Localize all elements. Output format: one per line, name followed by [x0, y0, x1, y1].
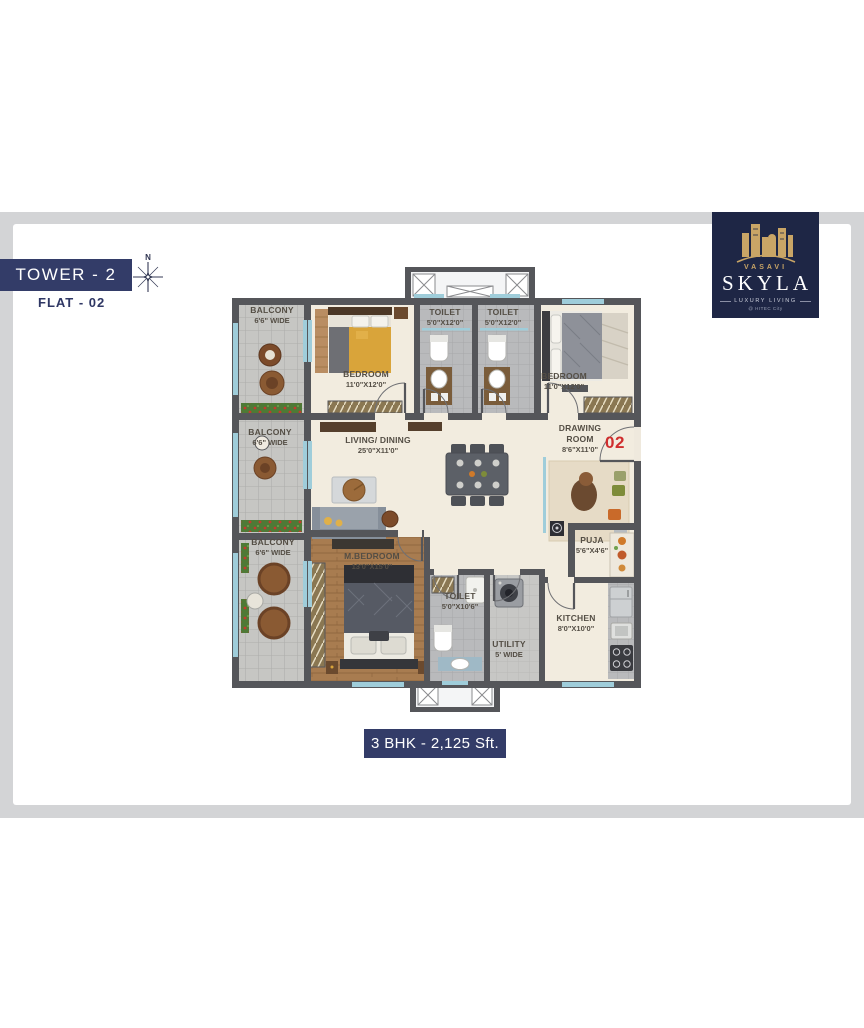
room-name: TOILET [485, 307, 522, 318]
room-dim: 6'6" WIDE [250, 316, 293, 326]
room-name: DRAWING ROOM [551, 423, 609, 445]
room-label-balcony-mid: BALCONY 6'6" WIDE [248, 427, 291, 448]
floor-plan-svg [232, 265, 641, 715]
room-dim: 8'0"X10'0" [556, 624, 595, 634]
room-name: M.BEDROOM [344, 551, 400, 562]
room-name: BEDROOM [343, 369, 389, 380]
puja-furniture [610, 533, 634, 577]
floor-plan: BALCONY 6'6" WIDE BEDROOM 11'0"X12'0" TO… [232, 265, 641, 715]
tagline-rule-right [800, 301, 811, 302]
room-label-balcony-bottom: BALCONY 6'6" WIDE [251, 537, 294, 558]
skyline-icon [735, 221, 797, 263]
room-name: KITCHEN [556, 613, 595, 624]
room-name: PUJA [576, 535, 608, 546]
room-dim: 25'0"X11'0" [345, 446, 411, 456]
unit-number: 02 [605, 433, 625, 453]
compass-icon: N [132, 253, 164, 297]
room-dim: 5'0"X12'0" [485, 318, 522, 328]
room-label-balcony-top: BALCONY 6'6" WIDE [250, 305, 293, 326]
room-dim: 13'0"X15'0" [344, 562, 400, 572]
logo-tagline: LUXURY LIVING [720, 298, 810, 304]
room-dim: 5'0"X10'6" [442, 602, 479, 612]
room-label-bedroom-1: BEDROOM 11'0"X12'0" [343, 369, 389, 390]
kitchen-fixtures [610, 587, 633, 671]
room-dim: 6'6" WIDE [251, 548, 294, 558]
room-name: TOILET [427, 307, 464, 318]
logo-brand-text: VASAVI [744, 264, 787, 271]
room-name: BALCONY [251, 537, 294, 548]
room-name: LIVING/ DINING [345, 435, 411, 446]
room-dim: 11'0"X12'0" [541, 382, 587, 392]
room-label-toilet-1: TOILET 5'0"X12'0" [427, 307, 464, 328]
room-dim: 5'6"X4'6" [576, 546, 608, 556]
summary-badge: 3 BHK - 2,125 Sft. [364, 729, 506, 758]
room-label-puja: PUJA 5'6"X4'6" [576, 535, 608, 556]
room-label-drawing-room: DRAWING ROOM 8'6"X11'0" [551, 423, 609, 455]
logo-location-text: @ HITEC City [748, 306, 782, 311]
logo-name-text: SKYLA [722, 271, 812, 296]
room-label-kitchen: KITCHEN 8'0"X10'0" [556, 613, 595, 634]
room-dim: 6'6" WIDE [248, 438, 291, 448]
compass-star-icon [133, 262, 163, 292]
room-label-living-dining: LIVING/ DINING 25'0"X11'0" [345, 435, 411, 456]
summary-text: 3 BHK - 2,125 Sft. [371, 735, 499, 752]
room-name: BEDROOM [541, 371, 587, 382]
room-name: BALCONY [248, 427, 291, 438]
tagline-rule-left [720, 301, 731, 302]
compass-north-label: N [132, 253, 164, 262]
tower-label: TOWER - 2 [15, 265, 116, 285]
room-dim: 8'6"X11'0" [551, 445, 609, 455]
flat-label: FLAT - 02 [38, 295, 105, 310]
room-label-bedroom-2: BEDROOM 11'0"X12'0" [541, 371, 587, 392]
room-name: TOILET [442, 591, 479, 602]
room-label-utility: UTILITY 5' WIDE [492, 639, 526, 660]
room-label-toilet-2: TOILET 5'0"X12'0" [485, 307, 522, 328]
room-name: UTILITY [492, 639, 526, 650]
room-label-master-bedroom: M.BEDROOM 13'0"X15'0" [344, 551, 400, 572]
room-dim: 11'0"X12'0" [343, 380, 389, 390]
brand-logo: VASAVI SKYLA LUXURY LIVING @ HITEC City [712, 212, 819, 318]
room-label-toilet-3: TOILET 5'0"X10'6" [442, 591, 479, 612]
room-dim: 5'0"X12'0" [427, 318, 464, 328]
tower-banner: TOWER - 2 [0, 259, 132, 291]
room-name: BALCONY [250, 305, 293, 316]
logo-tagline-text: LUXURY LIVING [734, 298, 796, 304]
room-dim: 5' WIDE [492, 650, 526, 660]
